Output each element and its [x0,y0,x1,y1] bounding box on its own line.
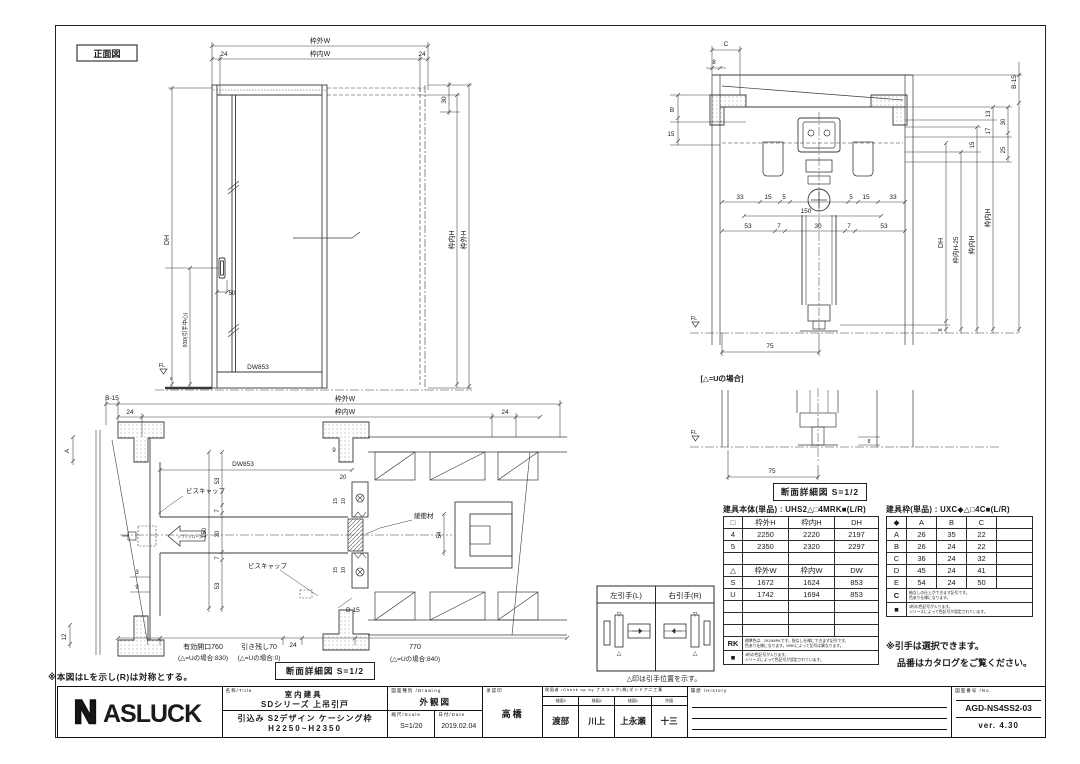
cell: 36 [907,553,937,565]
marker-up-l: △ [617,651,622,657]
cell [997,541,1033,553]
detail-caption-right: 断面詳細図 S=1/2 [773,483,867,501]
marker-up-r: △ [693,651,698,657]
cell: U [724,589,743,601]
cell: A [907,517,937,529]
note-line: 3桁の色記号が入ります。 [909,605,953,609]
cell: 5 [724,541,743,553]
cell: 45 [907,565,937,577]
blank-row [724,613,879,625]
mirror-note: ※本図はLを示し(R)は対称とする。 [48,671,193,683]
left-handle-label: 左引手(L) [610,590,642,600]
remain-dim-u: (△=Uの場合:0) [238,653,281,662]
cell [789,625,835,637]
cell [835,601,879,613]
dim-b: B [670,107,674,114]
cell: 41 [967,565,997,577]
note-line: シリーズによって色記号が設定されています。 [909,610,988,614]
history-line [692,729,947,730]
soft-close-label: ソフトクローズ [178,534,203,539]
history-label: 履歴 /History [691,688,728,694]
dim-770-u: (△=Uの場合:840) [390,654,440,663]
body-spec-title: 建具本体(単品) : UHS2△□4MRK■(L/R) [723,504,881,515]
h-row-4: 4 2250 2220 2197 [724,529,879,541]
check-col-label: 作図 [652,697,687,706]
blank-row [724,625,879,637]
cell: 853 [835,589,879,601]
handle-caption: △印は引手位置を示す。 [627,674,702,683]
cell: 枠内W [789,565,835,577]
cell: 枠外H [743,517,789,529]
dim-75-top: 75 [766,343,774,350]
note-line: 標準色は、2919MRKです。指なし仕様にできます記号です。 [745,639,848,643]
cell: 54 [907,577,937,589]
number-divider [956,700,1041,701]
cell: □ [724,517,743,529]
name-line2: SDシリーズ 上吊引戸 [223,699,388,710]
dim-10-bottom: 10 [341,567,347,573]
cell: DH [835,517,879,529]
cell [835,625,879,637]
dim-8-sub: 8 [868,439,871,445]
frame-note-row-c: C 袖なしの仕上ができます記号です。色あり仕様になります。 [887,589,1033,603]
dim-8: 8 [170,376,173,381]
cell: B [887,541,907,553]
cell [835,553,879,565]
note-line: 3桁の色記号が入ります。 [745,653,789,657]
frame-spec: 建具枠(単品) : UXC◆△□4C■(L/R) ◆ A B C A 26 35… [886,504,1036,617]
cell: 袖なしの仕上ができます記号です。色あり仕様になります。 [907,589,1033,603]
history-cell: 履歴 /History [688,687,952,737]
history-line [692,718,947,719]
note-row-rk: RK 標準色は、2919MRKです。指なし仕様にできます記号です。色あり仕様にな… [724,637,879,651]
note-line: 色あり仕様になります。MRKによって記号は異なります。 [745,644,844,648]
logo-n: N [74,694,97,730]
dim-53-r: 53 [880,223,888,230]
dim-30-r: 30 [1001,118,1007,125]
cell: 2220 [789,529,835,541]
body-spec-table: □ 枠外H 枠内H DH 4 2250 2220 2197 5 2350 232… [723,516,879,665]
cell: 2350 [743,541,789,553]
front-view: 正面図 枠外W 枠内W 24 24 DH 930(引手中心) 50 DW853 … [77,36,472,390]
dim-13: 13 [986,110,992,117]
dim-handle-center: 930(引手中心) [181,312,189,347]
cell: S [724,577,743,589]
opening-dim: 有効開口760 [183,642,223,651]
no-label: 図面番号 /No. [955,688,992,694]
dim-24-left: 24 [126,409,134,416]
cell [997,517,1033,529]
dim-9-left: 9 [135,585,139,591]
dim-a: A [64,448,71,453]
drawing-type: 外観図 [388,696,482,708]
cell [789,553,835,565]
cell: 枠外W [743,565,789,577]
dim-15-left: 15 [668,132,675,138]
title-block: N ASLUCK 名称/Title 室内建具 SDシリーズ 上吊引戸 引込み S… [57,686,1046,738]
cell: 3桁の色記号が入ります。シリーズによって色記号が設定されています。 [907,603,1033,617]
cell: 22 [967,529,997,541]
cell [743,601,789,613]
note-line: シリーズによって色記号が設定されています。 [745,658,824,662]
cell [724,625,743,637]
cell [743,625,789,637]
cell: 26 [907,529,937,541]
cell: 1672 [743,577,789,589]
number-divider [956,717,1041,718]
frame-note-row-color: ■ 3桁の色記号が入ります。シリーズによって色記号が設定されています。 [887,603,1033,617]
dim-8-top: 8 [712,60,716,66]
cell: 853 [835,577,879,589]
dim-b15-left: B-15 [105,395,119,402]
number-cell: 図面番号 /No. AGD-NS4SS2-03 ver. 4.30 [952,687,1045,737]
approval-name: 高橋 [483,707,542,720]
dim-24-bottom: 24 [289,642,297,649]
drawing-sheet: { "colors": {"line":"#3a3a3a","text":"#1… [0,0,1080,764]
cell: ■ [724,651,743,665]
screw-cap-label-bottom: ビスキャップ [248,561,288,570]
cell [743,613,789,625]
dim-12: 12 [62,633,68,640]
name-line4: H2250~H2350 [223,724,388,733]
cell: 24 [937,565,967,577]
cell: 32 [967,553,997,565]
handle-select-note-1: ※引手は選択できます。 [886,639,984,652]
marker-down-r: ▽ [693,612,698,618]
dim-770: 770 [409,644,421,651]
check-col-label: 検図3 [543,697,578,706]
logo-rest: ASLUCK [103,700,202,728]
check-col-name: 川上 [579,715,614,727]
cell [724,601,743,613]
dim-dw853: DW853 [232,461,254,468]
dim-outer-w: 枠外W [335,394,356,403]
cell [997,529,1033,541]
dim-20: 20 [340,475,347,481]
cell: 24 [937,553,967,565]
dim-b15-right: B-15 [346,607,360,614]
dim-150: 150 [202,527,208,538]
dim-15-bottom: 15 [333,567,339,573]
check-col-name: 上永瀬 [615,715,650,727]
dim-dh: DH [164,235,171,245]
cell: 35 [937,529,967,541]
cell: E [887,577,907,589]
frame-spec-title: 建具枠(単品) : UXC◆△□4C■(L/R) [886,504,1036,515]
cell: 1624 [789,577,835,589]
history-line [692,707,947,708]
fl-label-2: FL [691,430,697,436]
cell: 3桁の色記号が入ります。シリーズによって色記号が設定されています。 [743,651,879,665]
drawing-number: AGD-NS4SS2-03 [952,703,1045,713]
dim-30: 30 [215,530,221,537]
dim-15-top: 15 [333,498,339,504]
dim-150: 150 [801,208,812,215]
right-handle-label: 右引手(R) [669,590,702,600]
dim-7-top: 7 [215,509,221,513]
cell: 1694 [789,589,835,601]
blank-row [724,601,879,613]
dim-3: 3 [135,570,139,576]
cell: 標準色は、2919MRKです。指なし仕様にできます記号です。色あり仕様になります… [743,637,879,651]
cell: 26 [907,541,937,553]
h-row-5: 5 2350 2320 2297 [724,541,879,553]
u-case-label: [△=Uの場合] [700,373,744,383]
cell: B [937,517,967,529]
cell: 1742 [743,589,789,601]
cell: 4 [724,529,743,541]
dim-54: 54 [437,531,443,538]
frame-row-d: D 45 24 41 [887,565,1033,577]
dim-5-r: 5 [849,195,853,201]
dim-50: 50 [229,291,236,297]
door-width-label: DW853 [247,364,269,371]
dim-5-l: 5 [782,195,786,201]
dim-24-right: 24 [418,51,426,58]
dim-7-r: 7 [847,224,851,230]
cell [743,553,789,565]
dim-7-bottom: 7 [215,556,221,560]
dim-inner-w: 枠内W [335,407,356,416]
cell: ■ [887,603,907,617]
check-col-name: 渡部 [543,715,578,727]
cell: 24 [937,541,967,553]
dim-53-bottom: 53 [215,582,221,589]
cell [997,577,1033,589]
checkers-cell: 検図者 /Check up by ナスラック(株)ダンドア二工業 検図3 渡部 … [543,687,688,737]
cell [997,553,1033,565]
screw-cap-label-top: ビスキャップ [186,486,226,495]
dim-24-right: 24 [501,409,509,416]
cell: △ [724,565,743,577]
name-line3: 引込み S2デザイン ケーシング枠 [223,713,388,724]
cell [789,601,835,613]
dim-24-left: 24 [220,51,228,58]
dim-inner-w: 枠内W [310,49,331,58]
dim-33-r: 33 [889,194,897,201]
date-value: 2019.02.04 [435,723,482,730]
cushion-label: 緩衝材 [414,511,434,520]
cell: 2297 [835,541,879,553]
dim-15-r: 15 [862,194,870,201]
version: ver. 4.30 [952,721,1045,730]
dim-inner-h-25: 枠内H-25 [951,236,960,263]
drawing-cell: 図面種別 /Drawing 外観図 縮尺/Scale S=1/20 日付/Dat… [388,687,483,737]
frame-row-b: B 26 24 22 [887,541,1033,553]
cell: D [887,565,907,577]
cell [724,613,743,625]
marker-down-l: ▽ [617,612,622,618]
dim-30-head: 30 [441,96,448,104]
opening-dim-u: (△=Uの場合:830) [178,653,228,662]
scale-label: 縮尺/Scale [391,712,421,718]
dim-inner-h-b: 枠内H [983,208,992,227]
cell: A [887,529,907,541]
w-row-u: U 1742 1694 853 [724,589,879,601]
cell: RK [724,637,743,651]
frame-row-e: E 54 24 50 [887,577,1033,589]
dim-17: 17 [986,127,992,134]
w-row-s: S 1672 1624 853 [724,577,879,589]
cell [835,613,879,625]
remain-dim: 引き残し70 [241,642,277,651]
front-view-title: 正面図 [93,49,120,59]
cell: ◆ [887,517,907,529]
dim-30: 30 [814,223,822,230]
dim-15-l: 15 [764,194,772,201]
fl-label: FL [159,363,165,369]
cell: 2197 [835,529,879,541]
check-col-label: 検図1 [615,697,650,706]
dim-outer-w: 枠外W [310,36,331,45]
logo-cell: N ASLUCK [58,687,223,737]
check-col-name: 十三 [652,715,687,727]
w-header-row: △ 枠外W 枠内W DW [724,565,879,577]
scale-value: S=1/20 [388,723,434,730]
dim-outer-h: 枠外H [459,230,468,249]
name-label: 名称/Title [226,688,253,694]
dim-inner-h-a: 枠内H [967,235,976,254]
dim-75-sub: 75 [768,468,776,475]
section-view: C 8 B 15 33 15 5 5 15 33 150 53 7 30 7 5… [668,41,1022,480]
date-label: 日付/Date [438,712,465,718]
cell: C [967,517,997,529]
drawing-label: 図面種別 /Drawing [391,688,441,694]
dim-inner-h: 枠内H [447,230,456,249]
note-line: 袖なしの仕上ができます記号です。 [909,591,969,595]
approval-cell: 承認印 高橋 [483,687,543,737]
dim-7-l: 7 [777,224,781,230]
cell: 枠内H [789,517,835,529]
check-col-label: 検図2 [579,697,614,706]
dim-c: C [724,41,729,48]
fl-label: FL [691,316,697,322]
h-header-row: □ 枠外H 枠内H DH [724,517,879,529]
frame-row-c: C 36 24 32 [887,553,1033,565]
plan-view: B-15 枠外W 枠内W 24 24 A DW853 9 20 53 7 150… [62,394,569,663]
cell [997,565,1033,577]
frame-header-row: ◆ A B C [887,517,1033,529]
approval-label: 承認印 [486,688,503,694]
dim-8-bottom: 8 [938,328,944,331]
cell: 50 [967,577,997,589]
cell: 2250 [743,529,789,541]
dim-dh: DH [938,238,945,248]
detail-caption-plan: 断面詳細図 S=1/2 [275,662,375,680]
handle-selector: 左引手(L) 右引手(R) ▽ △ ▽ △ △印は引手位置を示す。 [597,586,714,683]
dim-b15: B-15 [1011,75,1018,89]
dim-25: 25 [1001,146,1007,153]
nasluck-logo: N ASLUCK [70,694,210,730]
dim-15-r2: 15 [970,141,976,148]
cell: 2320 [789,541,835,553]
dim-33-l: 33 [736,194,744,201]
dim-53-top: 53 [215,477,221,484]
body-spec: 建具本体(単品) : UHS2△□4MRK■(L/R) □ 枠外H 枠内H DH… [723,504,881,665]
blank-row [724,553,879,565]
cell: C [887,589,907,603]
cell [724,553,743,565]
handle-select-note-2: 品番はカタログをご覧ください。 [897,656,1032,669]
name-cell: 名称/Title 室内建具 SDシリーズ 上吊引戸 引込み S2デザイン ケーシ… [223,687,389,737]
frame-row-a: A 26 35 22 [887,529,1033,541]
cell [789,613,835,625]
cell: C [887,553,907,565]
cell: 22 [967,541,997,553]
frame-spec-table: ◆ A B C A 26 35 22 B 26 24 22 C 36 24 32 [886,516,1033,617]
dim-9-top: 9 [332,448,336,454]
cell: 24 [937,577,967,589]
dim-10-top: 10 [341,498,347,504]
note-line: 色あり仕様になります。 [909,596,950,600]
dim-53-l: 53 [744,223,752,230]
check-label: 検図者 /Check up by ナスラック(株)ダンドア二工業 [543,687,687,697]
note-row-color: ■ 3桁の色記号が入ります。シリーズによって色記号が設定されています。 [724,651,879,665]
cell: DW [835,565,879,577]
